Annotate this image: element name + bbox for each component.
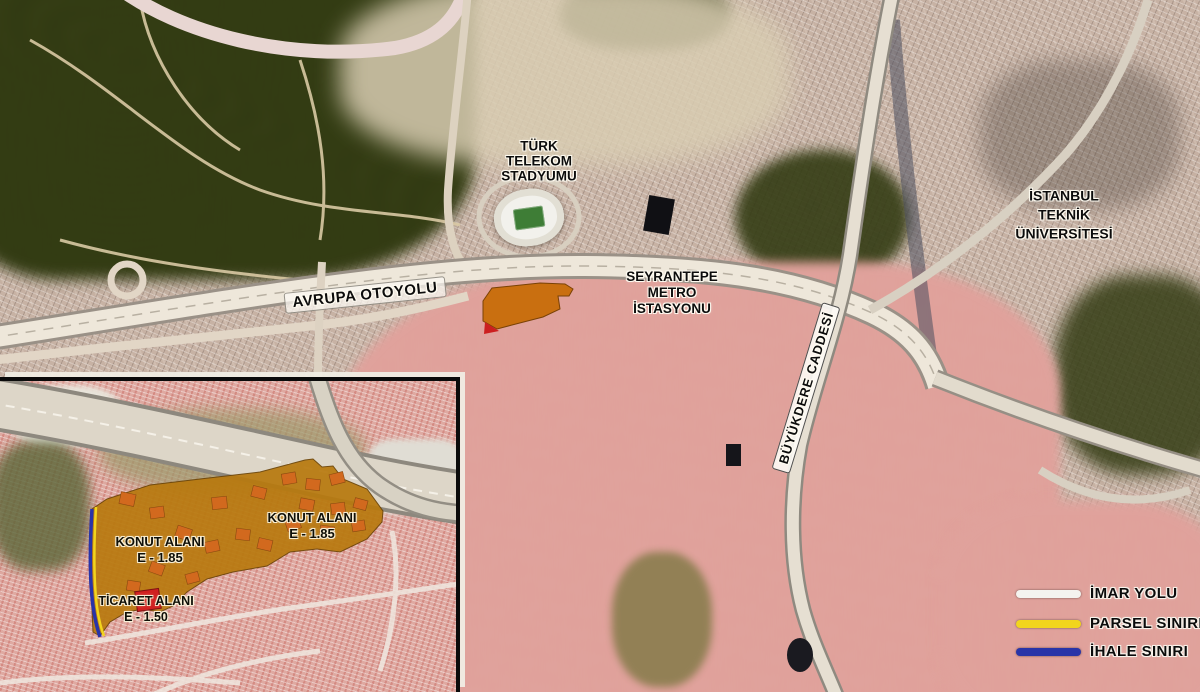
parsel-siniri-swatch [1016, 620, 1081, 628]
zone-name: KONUT ALANI [267, 510, 356, 526]
zone-name: KONUT ALANI [115, 534, 204, 550]
dark-building-south [787, 638, 813, 672]
legend-row-parsel-siniri: PARSEL SINIRI [1016, 615, 1200, 632]
zone-label-konut-east: KONUT ALANI E - 1.85 [267, 510, 356, 542]
inset-vector-layer [0, 381, 460, 692]
legend-label: PARSEL SINIRI [1090, 615, 1200, 632]
zone-ratio: E - 1.50 [98, 609, 193, 625]
zone-ratio: E - 1.85 [115, 550, 204, 566]
legend-label: İMAR YOLU [1090, 585, 1178, 602]
loop-ramp [111, 264, 143, 296]
label-line: TELEKOM [501, 154, 577, 169]
east-ramp [1040, 470, 1190, 500]
satellite-map: TÜRK TELEKOM STADYUMU AVRUPA OTOYOLU SEY… [0, 0, 1200, 692]
parcel-highlight [483, 283, 573, 329]
connector-road [318, 262, 322, 377]
top-road [115, 0, 465, 52]
label-line: İSTANBUL [1015, 187, 1112, 206]
metro-station-label: SEYRANTEPE METRO İSTASYONU [626, 269, 718, 317]
stadium-access-road [448, 0, 470, 272]
east-highway [935, 378, 1200, 470]
label-line: SEYRANTEPE [626, 269, 718, 285]
imar-yolu-swatch [1016, 590, 1081, 598]
metro-station-building [643, 195, 675, 235]
label-line: TÜRK [501, 139, 577, 154]
zone-label-ticaret: TİCARET ALANI E - 1.50 [98, 593, 193, 625]
university-label: İSTANBUL TEKNİK ÜNİVERSİTESİ [1015, 187, 1112, 244]
stadium-label: TÜRK TELEKOM STADYUMU [501, 139, 577, 184]
legend-row-ihale-siniri: İHALE SINIRI [1016, 643, 1188, 660]
ihale-siniri-swatch [1016, 648, 1081, 656]
zone-ratio: E - 1.85 [267, 526, 356, 542]
legend-label: İHALE SINIRI [1090, 643, 1188, 660]
label-line: İSTASYONU [626, 301, 718, 317]
label-line: TEKNİK [1015, 206, 1112, 225]
label-line: ÜNİVERSİTESİ [1015, 225, 1112, 244]
stadium-pitch [513, 205, 546, 230]
dark-building-center [726, 444, 741, 466]
zone-label-konut-west: KONUT ALANI E - 1.85 [115, 534, 204, 566]
zone-name: TİCARET ALANI [98, 593, 193, 609]
label-line: METRO [626, 285, 718, 301]
inset-map: KONUT ALANI E - 1.85 KONUT ALANI E - 1.8… [0, 377, 460, 692]
label-line: STADYUMU [501, 169, 577, 184]
legend-row-imar-yolu: İMAR YOLU [1016, 585, 1178, 602]
